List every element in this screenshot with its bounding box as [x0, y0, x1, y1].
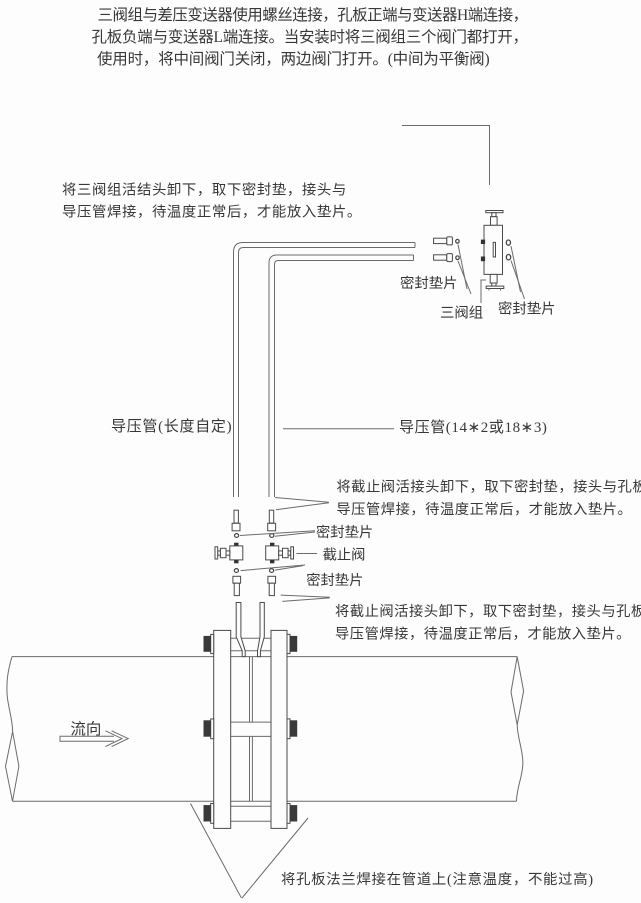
- svg-text:截止阀: 截止阀: [323, 547, 366, 564]
- svg-text:将截止阀活接头卸下，取下密封垫，接头与孔板: 将截止阀活接头卸下，取下密封垫，接头与孔板: [335, 603, 641, 620]
- svg-text:密封垫片: 密封垫片: [498, 301, 556, 318]
- svg-text:将三阀组活结头卸下，取下密封垫，接头与: 将三阀组活结头卸下，取下密封垫，接头与: [62, 182, 347, 199]
- svg-text:三阀组: 三阀组: [440, 305, 483, 322]
- svg-text:流向: 流向: [70, 720, 101, 738]
- svg-text:导压管(长度自定): 导压管(长度自定): [111, 418, 232, 435]
- svg-text:导压管焊接，待温度正常后，才能放入垫片。: 导压管焊接，待温度正常后，才能放入垫片。: [335, 626, 631, 643]
- svg-text:孔板负端与变送器L端连接。当安装时将三阀组三个阀门都打开，: 孔板负端与变送器L端连接。当安装时将三阀组三个阀门都打开，: [92, 28, 528, 46]
- svg-text:将截止阀活接头卸下，取下密封垫，接头与孔板: 将截止阀活接头卸下，取下密封垫，接头与孔板: [336, 479, 641, 496]
- svg-text:导压管焊接，待温度正常后，才能放入垫片。: 导压管焊接，待温度正常后，才能放入垫片。: [336, 501, 632, 518]
- svg-text:密封垫片: 密封垫片: [306, 572, 363, 589]
- svg-text:将孔板法兰焊接在管道上(注意温度，不能过高): 将孔板法兰焊接在管道上(注意温度，不能过高): [281, 870, 594, 888]
- svg-text:导压管焊接，待温度正常后，才能放入垫片。: 导压管焊接，待温度正常后，才能放入垫片。: [62, 204, 362, 221]
- svg-text:密封垫片: 密封垫片: [316, 524, 373, 541]
- svg-text:密封垫片: 密封垫片: [400, 275, 458, 292]
- svg-text:使用时，将中间阀门关闭，两边阀门打开。(中间为平衡阀): 使用时，将中间阀门关闭，两边阀门打开。(中间为平衡阀): [97, 50, 489, 68]
- svg-text:导压管(14∗2或18∗3): 导压管(14∗2或18∗3): [399, 419, 548, 436]
- svg-text:三阀组与差压变送器使用螺丝连接，孔板正端与变送器H端连接，: 三阀组与差压变送器使用螺丝连接，孔板正端与变送器H端连接，: [98, 6, 528, 24]
